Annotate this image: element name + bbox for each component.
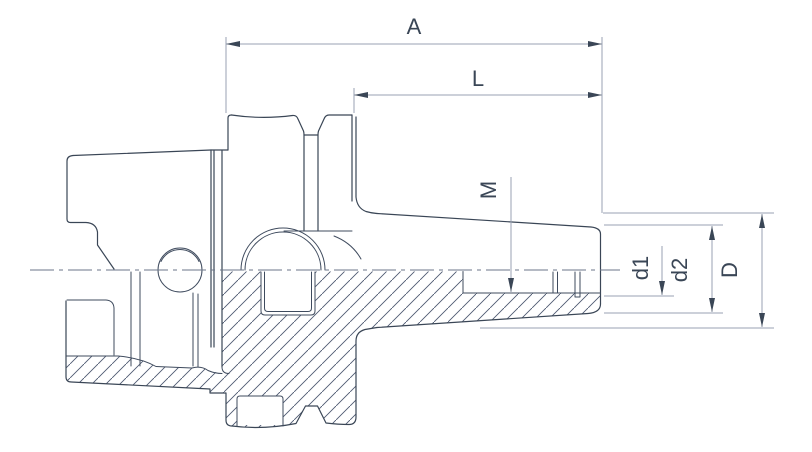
dimension-labels: A L M d1 d2 D xyxy=(407,14,742,282)
dim-D-arrow-bottom xyxy=(759,313,765,327)
dim-L-arrow-left xyxy=(354,92,368,98)
key-slot-void xyxy=(237,396,283,425)
flange-nose-fillet-edge xyxy=(334,236,361,259)
dim-d2-arrow-bottom xyxy=(709,298,715,312)
technical-drawing-canvas: A L M d1 d2 D xyxy=(0,0,812,452)
dim-label-A: A xyxy=(407,14,422,39)
dim-d2-lines xyxy=(604,225,723,313)
dim-d2-arrow-top xyxy=(709,226,715,240)
dim-label-L: L xyxy=(472,66,484,91)
clamping-bore xyxy=(463,272,601,298)
dim-L-arrow-right xyxy=(588,92,602,98)
shank-left-face xyxy=(67,156,114,270)
dim-d1-arrow xyxy=(659,281,665,295)
dim-A-arrow-right xyxy=(588,41,602,47)
dim-L-lines xyxy=(354,88,602,113)
dim-D-arrow-top xyxy=(759,214,765,228)
flange-crown xyxy=(232,115,353,135)
dim-label-d1: d1 xyxy=(628,256,653,280)
dim-A-lines xyxy=(226,37,602,213)
shank-top-edge xyxy=(73,150,211,156)
drive-slot-section xyxy=(67,300,114,355)
flange-left-face xyxy=(228,115,232,150)
v-groove-walls xyxy=(304,135,318,231)
section-hatch-areas xyxy=(66,270,601,428)
flange-right-face xyxy=(352,115,377,214)
tool-holder-drawing: A L M d1 d2 D xyxy=(0,0,812,452)
ball-inner-arc xyxy=(161,249,199,261)
dim-A-arrow-left xyxy=(226,41,240,47)
dim-label-D: D xyxy=(717,262,742,278)
dim-label-d2: d2 xyxy=(667,258,692,282)
ball-track-recess-void xyxy=(261,270,315,315)
dim-M-arrow xyxy=(508,278,514,292)
ball-track-arc-outer xyxy=(241,228,325,270)
dim-label-M: M xyxy=(476,181,501,199)
